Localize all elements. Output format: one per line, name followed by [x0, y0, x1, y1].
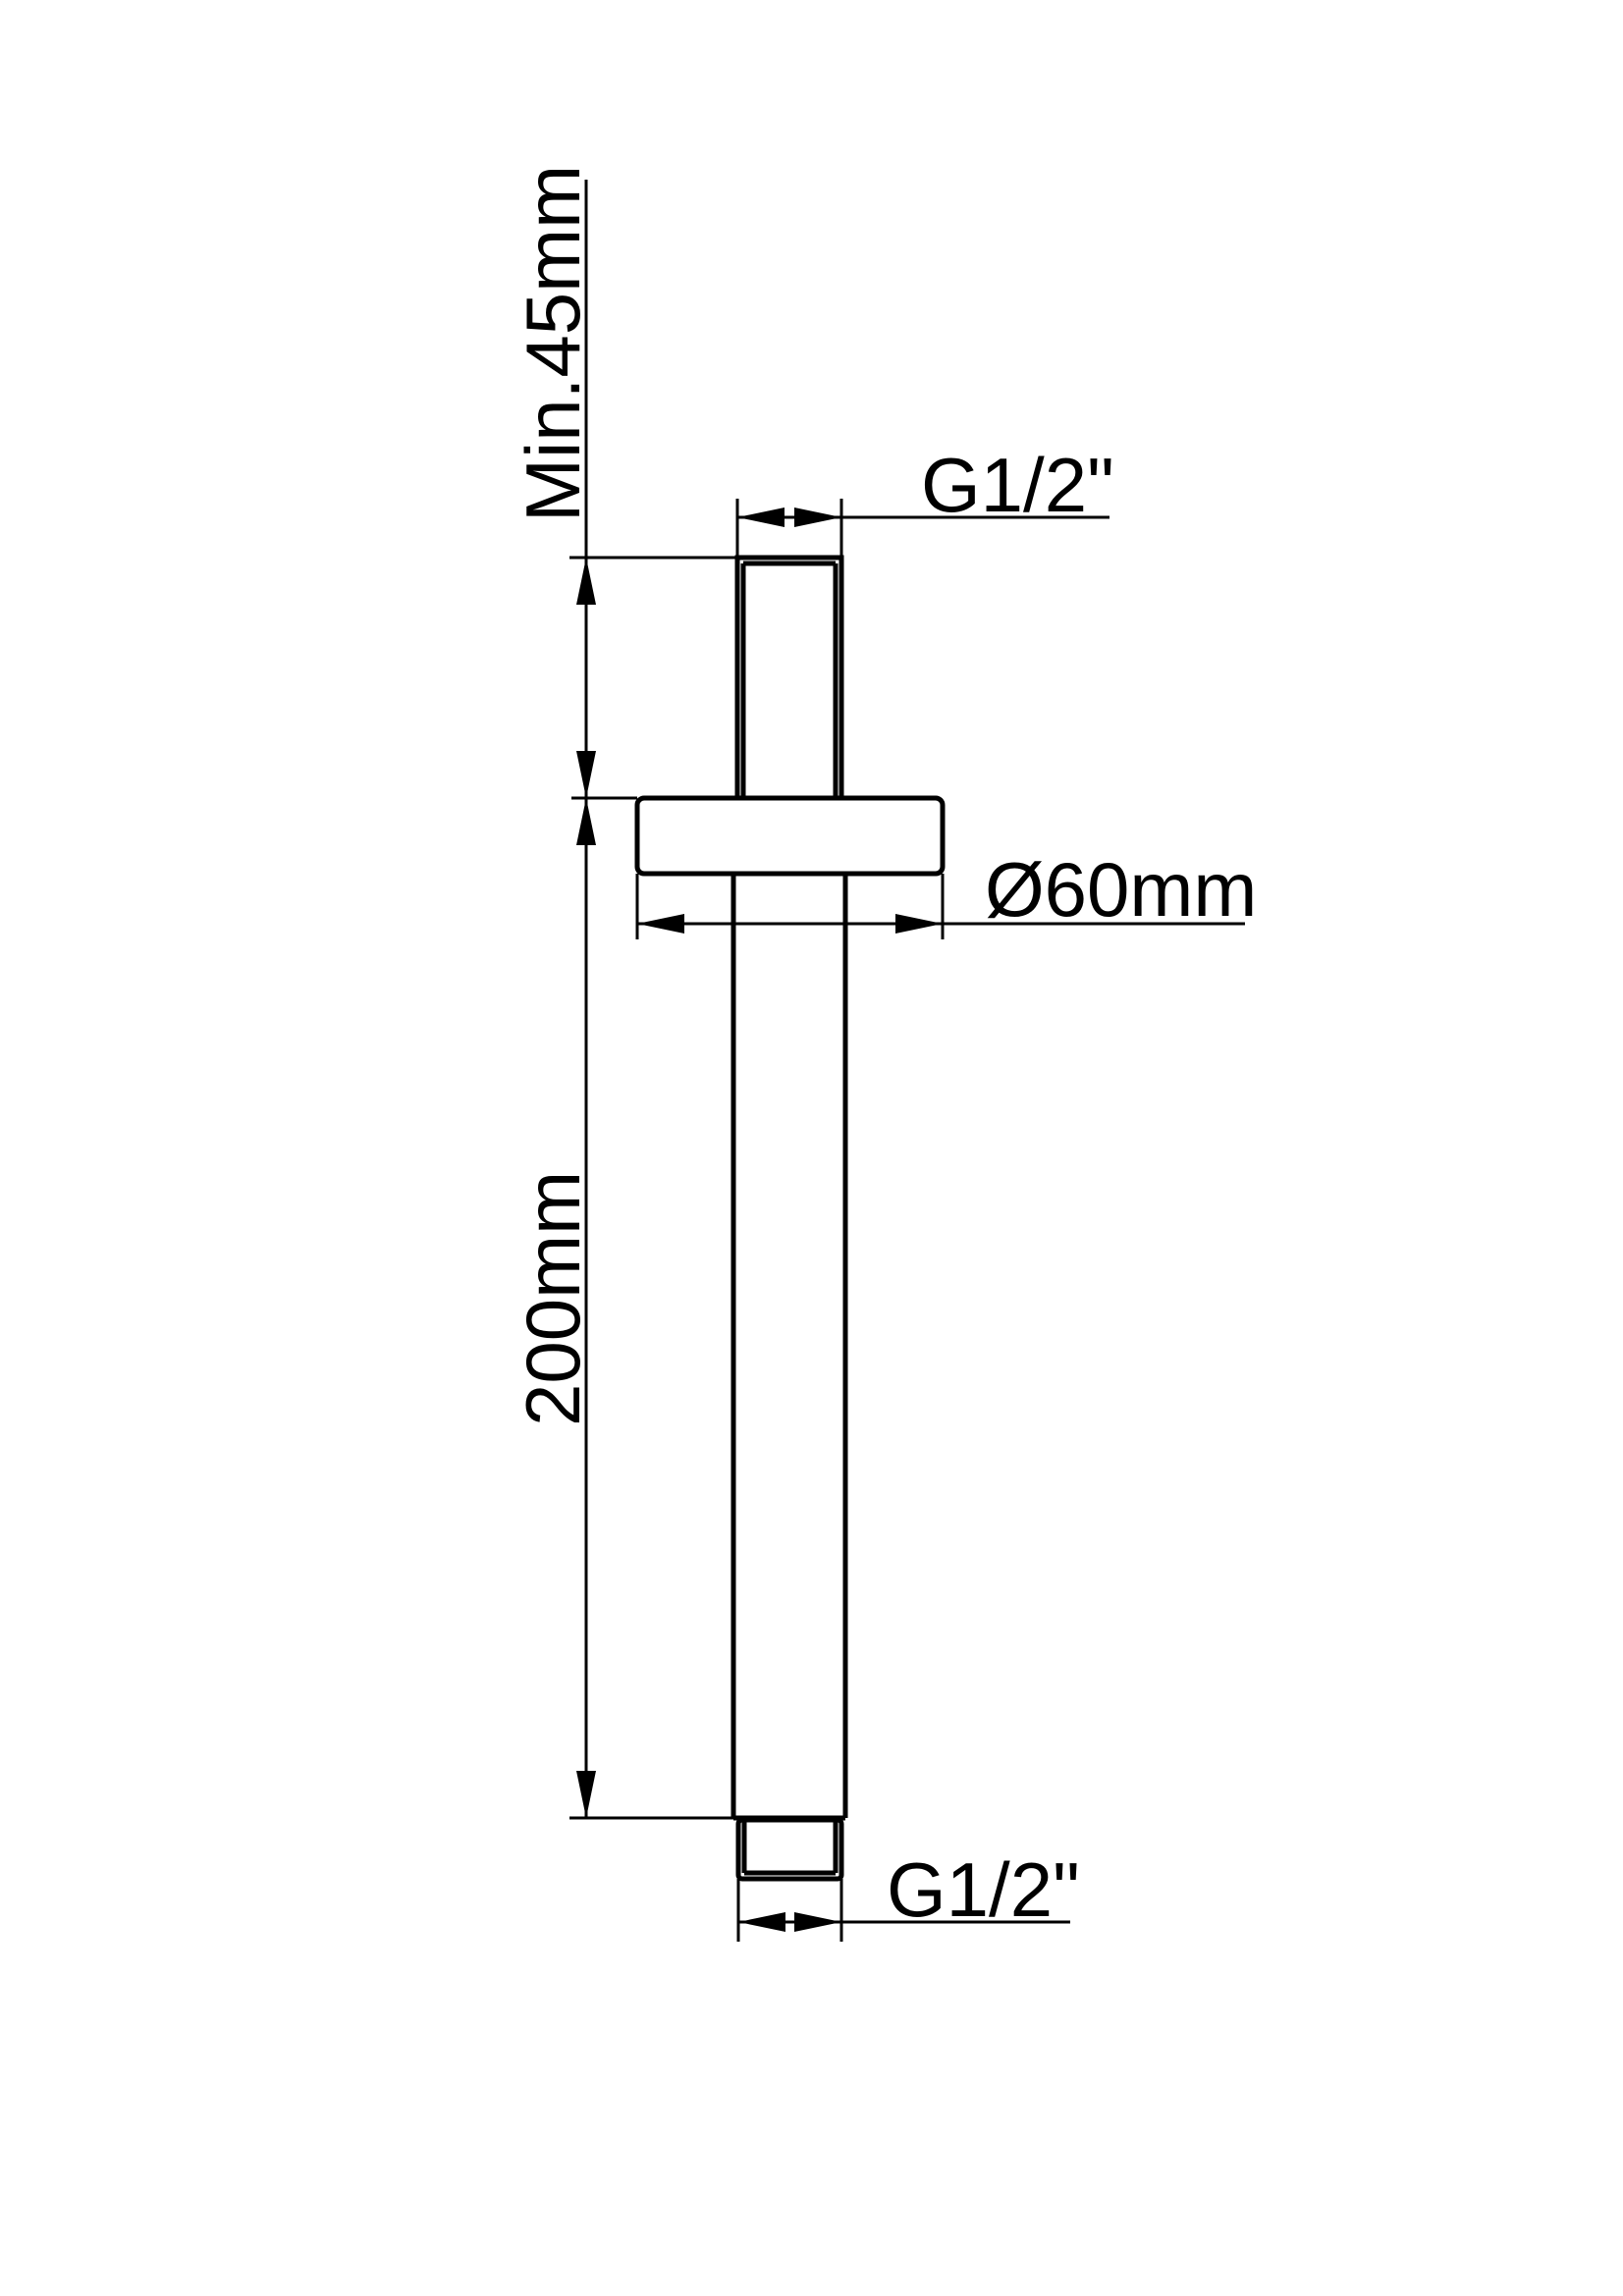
arrowhead-left-icon — [637, 914, 684, 934]
arrowhead-left-icon — [738, 1912, 785, 1932]
arrowhead-right-icon — [794, 507, 841, 527]
top-thread-outer-wall — [737, 558, 841, 798]
arrowhead-right-icon — [895, 914, 943, 934]
arm-tube — [733, 874, 845, 1818]
dimension-lines — [569, 180, 1245, 1942]
bottom-thread-pipe — [738, 1820, 841, 1879]
arrowhead-left-icon — [737, 507, 784, 527]
shower-arm-outline — [637, 558, 943, 1879]
bottom-thread-size-label: G1/2" — [887, 1846, 1080, 1933]
top-thread-size-label: G1/2" — [921, 442, 1114, 528]
ceiling-flange — [637, 798, 943, 874]
arrowhead-right-icon — [794, 1912, 841, 1932]
shower-arm-diagram: Min.45mm G1/2" Ø60mm 200mm G1/2" — [0, 0, 1623, 2296]
flange-diameter-label: Ø60mm — [985, 846, 1257, 933]
arm-length-label: 200mm — [510, 1171, 596, 1426]
min-ceiling-depth-label: Min.45mm — [510, 165, 596, 522]
arrowhead-down-icon — [576, 1771, 596, 1818]
dimension-labels: Min.45mm G1/2" Ø60mm 200mm G1/2" — [510, 165, 1257, 1933]
bottom-thread-outer-wall — [738, 1820, 841, 1879]
top-thread-pipe — [737, 558, 841, 798]
arrowhead-up-icon — [576, 558, 596, 605]
arrowhead-up-icon — [576, 798, 596, 845]
dimension-arrowheads — [576, 507, 943, 1932]
arrowhead-down-icon — [576, 751, 596, 798]
technical-drawing-canvas: Min.45mm G1/2" Ø60mm 200mm G1/2" — [0, 0, 1623, 2296]
flange-body — [637, 798, 943, 874]
